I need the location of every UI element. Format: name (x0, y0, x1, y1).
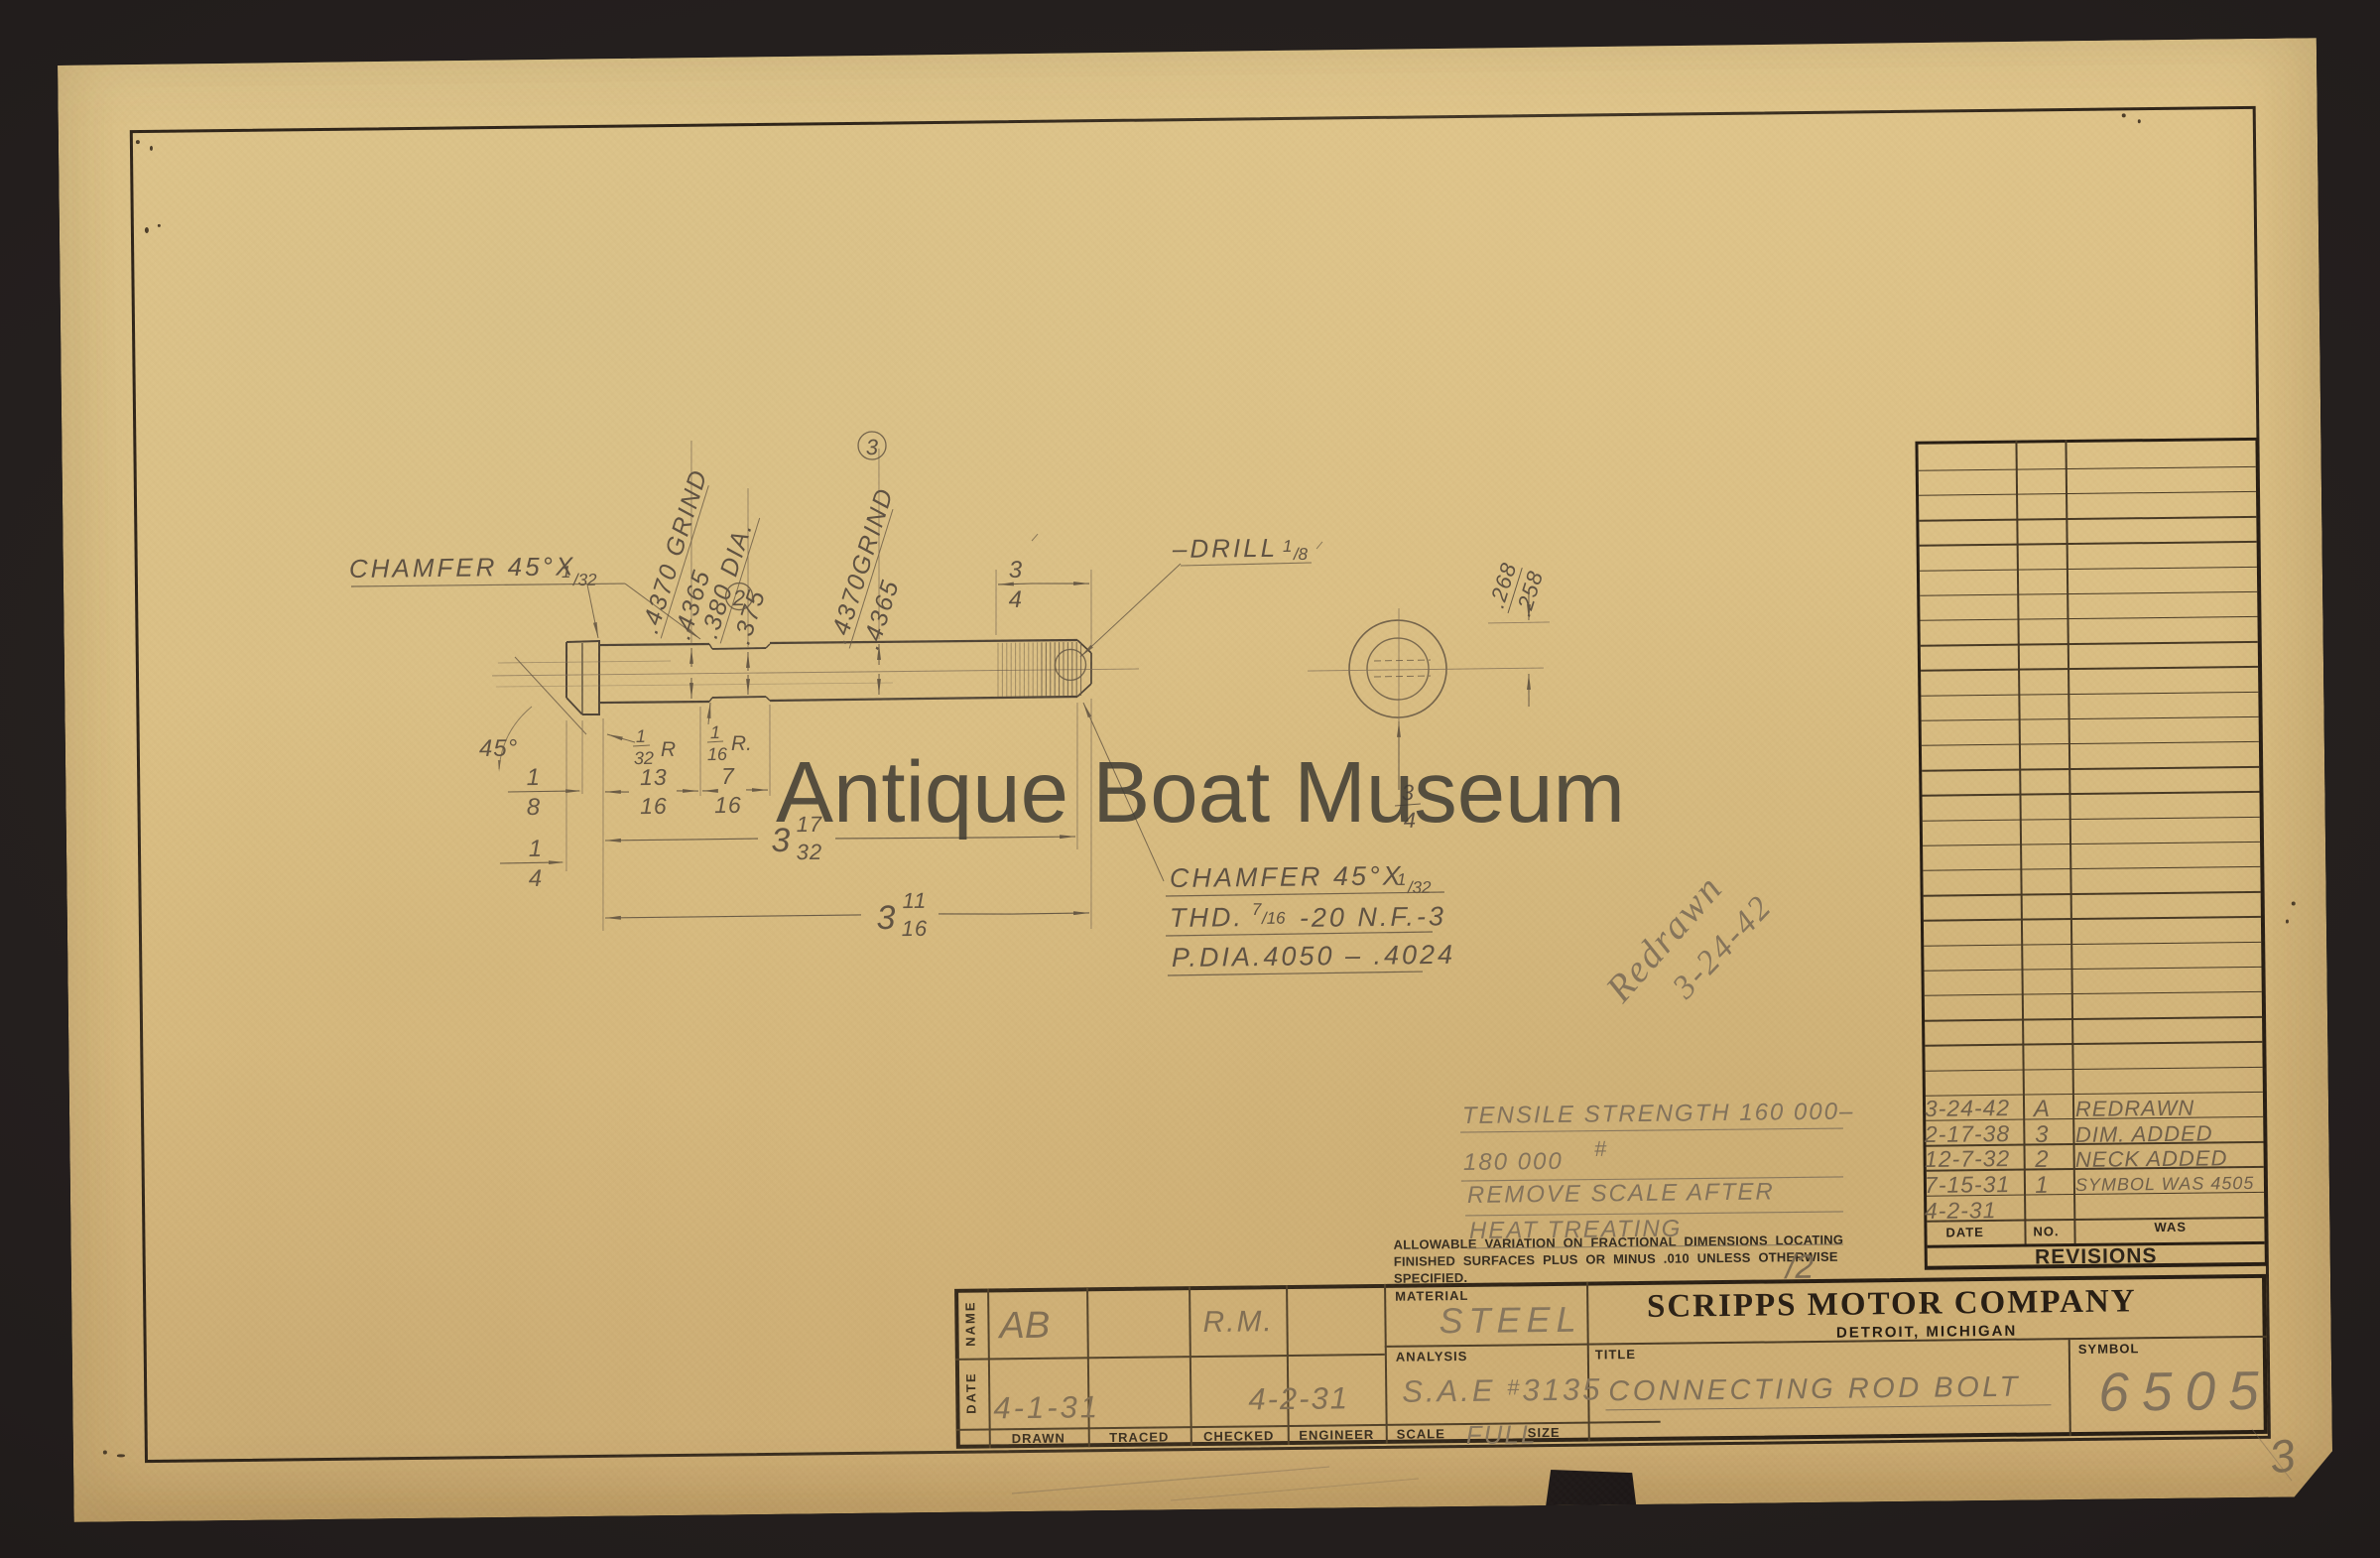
svg-text:1: 1 (529, 836, 544, 862)
svg-text:R.: R. (731, 732, 752, 755)
svg-text:4-2-31: 4-2-31 (1925, 1197, 1997, 1224)
svg-text:8: 8 (527, 794, 542, 821)
svg-text:HEAT TREATING: HEAT TREATING (1469, 1216, 1683, 1244)
svg-text:3: 3 (876, 899, 895, 937)
svg-text:7: 7 (721, 763, 735, 789)
svg-text:TENSILE STRENGTH 160 000–: TENSILE STRENGTH 160 000– (1462, 1099, 1855, 1129)
svg-text:REMOVE SCALE AFTER: REMOVE SCALE AFTER (1467, 1178, 1775, 1209)
svg-text:3-24-42: 3-24-42 (1925, 1095, 2011, 1121)
svg-text:16: 16 (640, 793, 668, 819)
svg-text:1: 1 (710, 722, 720, 742)
svg-text:11: 11 (902, 888, 927, 913)
svg-text:/32: /32 (572, 571, 597, 589)
svg-text:16: 16 (902, 916, 929, 941)
svg-text:1: 1 (527, 764, 542, 791)
svg-text:16: 16 (707, 744, 728, 764)
svg-text:NECK ADDED: NECK ADDED (2075, 1145, 2228, 1172)
svg-text:3: 3 (2266, 1429, 2300, 1484)
svg-text:–DRILL: –DRILL (1172, 533, 1278, 564)
svg-text:2: 2 (732, 585, 746, 610)
svg-text:1: 1 (2035, 1172, 2049, 1199)
svg-text:/8: /8 (1293, 545, 1309, 564)
svg-text:4: 4 (529, 865, 544, 892)
svg-text:2: 2 (2034, 1146, 2049, 1173)
svg-text:/32: /32 (1407, 878, 1432, 897)
svg-text:REDRAWN: REDRAWN (2075, 1096, 2195, 1121)
svg-text:7: 7 (1252, 900, 1262, 919)
svg-text:-20 N.F.-3: -20 N.F.-3 (1300, 901, 1446, 933)
svg-text:3: 3 (1009, 557, 1024, 584)
svg-text:1: 1 (1397, 870, 1407, 889)
svg-text:1: 1 (562, 563, 571, 582)
svg-text:3: 3 (866, 435, 879, 459)
svg-text:#: # (1594, 1136, 1607, 1161)
svg-text:45°: 45° (479, 735, 519, 762)
svg-text:1: 1 (636, 726, 646, 746)
svg-text:SYMBOL WAS 4505: SYMBOL WAS 4505 (2075, 1173, 2255, 1195)
svg-text:3: 3 (2035, 1121, 2049, 1148)
svg-text:DIM. ADDED: DIM. ADDED (2075, 1120, 2213, 1147)
svg-text:2-17-38: 2-17-38 (1924, 1120, 2011, 1147)
svg-text:CHAMFER 45°X: CHAMFER 45°X (349, 551, 576, 584)
svg-text:16: 16 (714, 792, 742, 818)
svg-text:1: 1 (1283, 537, 1293, 556)
svg-text:7-15-31: 7-15-31 (1925, 1171, 2011, 1198)
svg-text:/2: /2 (1784, 1248, 1815, 1286)
svg-text:13: 13 (640, 764, 668, 790)
svg-text:180 000: 180 000 (1463, 1148, 1564, 1176)
svg-text:R: R (661, 738, 676, 761)
svg-text:A: A (2032, 1096, 2050, 1122)
svg-text:P.DIA.4050 – .4024: P.DIA.4050 – .4024 (1172, 940, 1456, 973)
svg-text:THD.: THD. (1170, 902, 1244, 933)
svg-text:12-7-32: 12-7-32 (1925, 1145, 2011, 1172)
svg-text:/16: /16 (1261, 909, 1286, 928)
svg-text:32: 32 (797, 840, 823, 864)
svg-text:4: 4 (1009, 586, 1024, 613)
svg-text:CHAMFER 45°X: CHAMFER 45°X (1170, 860, 1404, 893)
